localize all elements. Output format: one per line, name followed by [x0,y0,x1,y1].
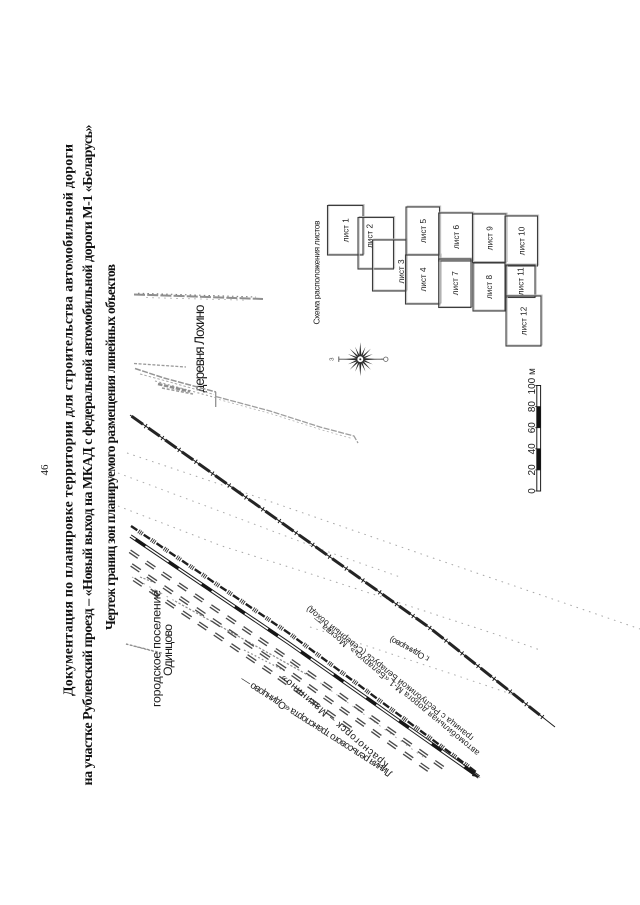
svg-text:20: 20 [527,464,538,476]
svg-text:деревня Лохино: деревня Лохино [192,305,207,393]
svg-text:Документация по планировке тер: Документация по планировке территории дл… [61,144,76,696]
svg-text:80: 80 [527,401,538,413]
svg-text:Чертеж границ зон планируемого: Чертеж границ зон планируемого размещени… [103,264,118,630]
svg-text:лист 12: лист 12 [520,306,529,335]
svg-text:лист 3: лист 3 [397,259,406,283]
svg-text:лист 1: лист 1 [341,218,350,242]
svg-text:З: З [330,357,336,361]
svg-text:лист 8: лист 8 [485,275,494,299]
svg-text:46: 46 [39,464,51,476]
svg-text:лист 10: лист 10 [517,226,526,255]
svg-text:лист 6: лист 6 [452,225,461,249]
svg-text:Одинцово: Одинцово [161,624,175,676]
svg-text:Схема расположения листов: Схема расположения листов [312,220,322,325]
svg-text:лист 11: лист 11 [517,267,526,295]
svg-text:лист 9: лист 9 [485,226,494,250]
svg-text:лист 4: лист 4 [419,267,428,291]
svg-text:0: 0 [527,488,538,494]
svg-text:лист 2: лист 2 [366,224,375,248]
svg-text:на участке Рублевский проезд –: на участке Рублевский проезд – «Новый вы… [81,125,96,786]
svg-text:60: 60 [527,422,538,434]
svg-text:100 м: 100 м [527,368,538,394]
svg-text:лист 5: лист 5 [419,219,428,243]
svg-text:40: 40 [527,443,538,455]
svg-text:г. Одинцово): г. Одинцово) [387,635,431,665]
svg-text:лист 7: лист 7 [451,271,460,295]
